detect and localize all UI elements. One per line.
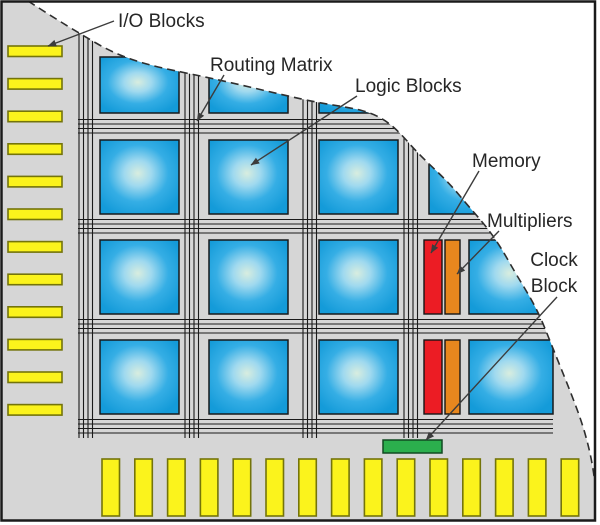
- label-io-blocks: I/O Blocks: [118, 11, 205, 32]
- clock-block: [383, 440, 442, 453]
- io-block-left: [8, 405, 62, 416]
- memory-block: [424, 340, 442, 414]
- io-block-bottom: [200, 459, 218, 516]
- logic-block: [100, 340, 179, 414]
- fpga-architecture-diagram: I/O BlocksRouting MatrixLogic BlocksMemo…: [0, 0, 600, 525]
- logic-block: [319, 340, 398, 414]
- io-block-bottom: [496, 459, 513, 516]
- io-block-bottom: [364, 459, 382, 516]
- io-block-left: [8, 307, 62, 318]
- logic-block: [100, 140, 179, 214]
- logic-block: [319, 240, 398, 314]
- io-block-bottom: [299, 459, 317, 516]
- logic-block: [100, 240, 179, 314]
- io-block-left: [8, 111, 62, 122]
- io-block-bottom: [266, 459, 284, 516]
- io-block-bottom: [168, 459, 186, 516]
- io-block-left: [8, 79, 62, 90]
- label-logic-blocks: Logic Blocks: [355, 76, 462, 97]
- label-memory: Memory: [472, 151, 541, 172]
- io-block-bottom: [332, 459, 350, 516]
- io-block-left: [8, 242, 62, 253]
- label-routing-matrix: Routing Matrix: [210, 55, 333, 76]
- io-block-bottom: [463, 459, 481, 516]
- io-block-bottom: [233, 459, 251, 516]
- label-clock: Clock: [530, 250, 578, 271]
- logic-block: [209, 240, 288, 314]
- logic-block: [100, 57, 179, 113]
- logic-block: [469, 340, 553, 414]
- io-block-left: [8, 144, 62, 155]
- io-block-left: [8, 176, 62, 187]
- label-clock-block: Block: [531, 276, 578, 297]
- io-block-bottom: [397, 459, 415, 516]
- io-block-bottom: [430, 459, 448, 516]
- logic-block: [209, 140, 288, 214]
- io-block-left: [8, 274, 62, 285]
- io-block-left: [8, 372, 62, 383]
- io-block-left: [8, 46, 62, 57]
- io-block-left: [8, 209, 62, 220]
- multiplier-block: [445, 340, 460, 414]
- logic-block: [319, 140, 398, 214]
- io-block-bottom: [528, 459, 546, 516]
- io-block-bottom: [102, 459, 120, 516]
- label-multipliers: Multipliers: [487, 211, 573, 232]
- io-block-left: [8, 339, 62, 350]
- io-block-bottom: [135, 459, 153, 516]
- multiplier-block: [445, 240, 460, 314]
- memory-block: [424, 240, 442, 314]
- logic-block: [209, 340, 288, 414]
- io-block-bottom: [561, 459, 579, 516]
